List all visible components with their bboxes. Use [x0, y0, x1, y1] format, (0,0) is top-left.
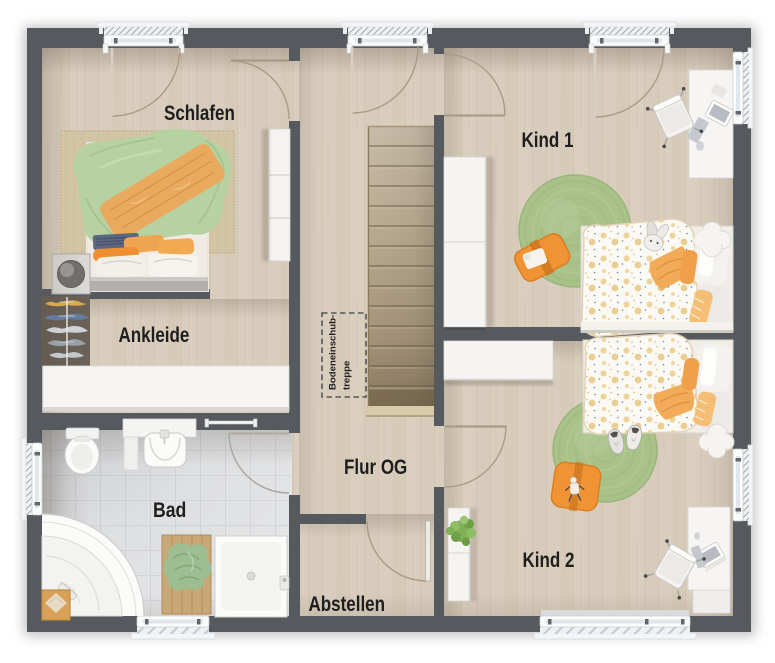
svg-text:Flur OG: Flur OG: [344, 456, 407, 479]
svg-text:Kind 2: Kind 2: [523, 549, 575, 572]
svg-text:Abstellen: Abstellen: [309, 593, 386, 616]
svg-text:Schlafen: Schlafen: [164, 102, 235, 125]
svg-text:Ankleide: Ankleide: [119, 324, 190, 347]
svg-text:Kind 1: Kind 1: [522, 129, 574, 152]
svg-text:Bad: Bad: [153, 499, 186, 523]
